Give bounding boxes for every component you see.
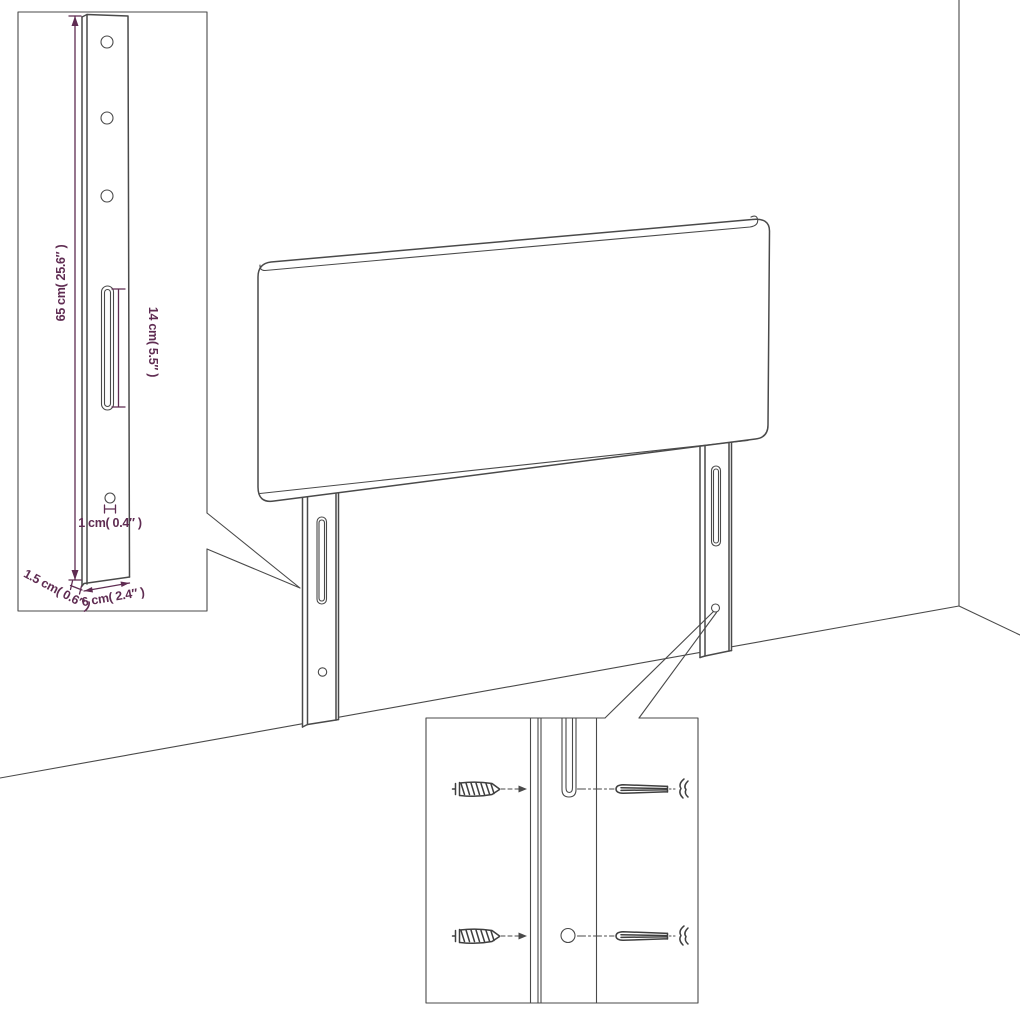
screw-icon <box>453 929 500 943</box>
label-slot-length: 14 cm( 5.5″ ) <box>146 307 160 377</box>
inset-mounting-detail <box>426 612 717 1004</box>
inset-hole-lower <box>101 190 113 202</box>
label-hole-diameter: 1 cm( 0.4″ ) <box>78 516 142 530</box>
inset-leg-drawing <box>82 15 130 587</box>
dimension-hole-diameter: 1 cm( 0.4″ ) <box>78 505 142 530</box>
screw-direction-arrow <box>501 786 527 793</box>
headboard-panel <box>258 216 770 501</box>
wall-plug-icon <box>616 779 688 798</box>
right-leg <box>700 430 732 658</box>
inset-slot <box>102 286 114 410</box>
floor-line-left <box>0 606 959 778</box>
strip-hole <box>561 929 575 943</box>
inset-hole-middle <box>101 112 113 124</box>
headboard-assembly-diagram: 65 cm( 25.6″ ) 14 cm( 5.5″ ) 1 cm( 0.4″ … <box>0 0 1020 1020</box>
left-leg <box>303 470 339 727</box>
inset-small-hole <box>105 493 115 503</box>
label-leg-height: 65 cm( 25.6″ ) <box>54 244 68 321</box>
inset-mounting-leg-strip <box>531 718 597 1003</box>
dimension-leg-height: 65 cm( 25.6″ ) <box>54 16 81 580</box>
screw-direction-arrow <box>501 933 527 940</box>
dimension-leg-width: 6 cm( 2.4″ ) <box>81 582 146 610</box>
floor-line-right <box>959 606 1020 635</box>
wall-plug-icon <box>616 926 688 945</box>
inset-leg-callout-wedge <box>207 513 300 588</box>
strip-slot <box>562 718 576 797</box>
dimension-slot-length: 14 cm( 5.5″ ) <box>112 289 160 407</box>
inset-hole-top <box>101 36 113 48</box>
screw-icon <box>453 782 500 796</box>
diagram-canvas: 65 cm( 25.6″ ) 14 cm( 5.5″ ) 1 cm( 0.4″ … <box>0 0 1020 1020</box>
